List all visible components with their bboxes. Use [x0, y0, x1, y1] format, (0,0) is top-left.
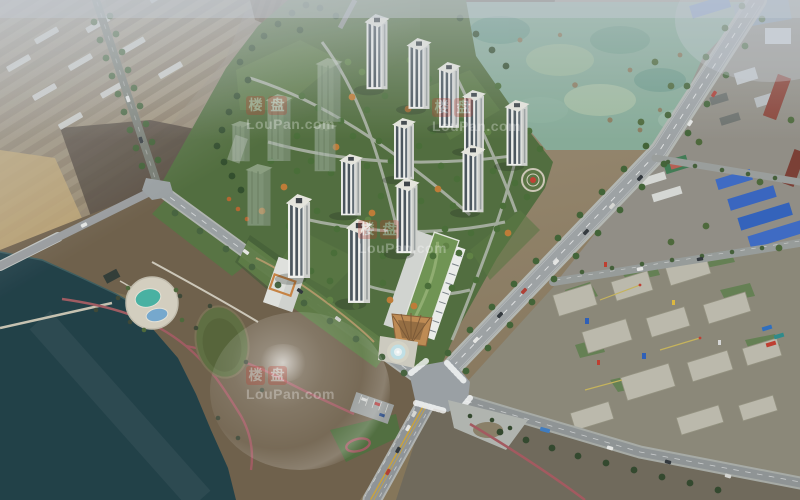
- aerial-scene: [0, 0, 800, 500]
- haze-overlay: [0, 0, 800, 500]
- aerial-render: 楼 盘 LouPan.com 楼 盘 LouPan.com 楼 盘 LouPan…: [0, 0, 800, 500]
